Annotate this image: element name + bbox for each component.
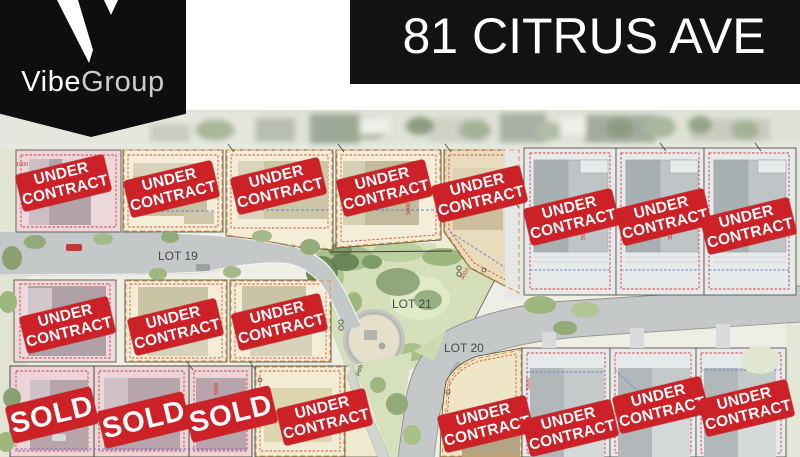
svg-text:5000: 5000 — [526, 378, 532, 390]
svg-text:LOT 21: LOT 21 — [392, 297, 432, 311]
svg-text:LOT 19: LOT 19 — [158, 249, 198, 263]
svg-text:1000: 1000 — [16, 162, 28, 168]
svg-text:LOT 20: LOT 20 — [444, 341, 484, 355]
svg-text:5000: 5000 — [214, 383, 220, 395]
svg-text:5000: 5000 — [406, 203, 412, 215]
